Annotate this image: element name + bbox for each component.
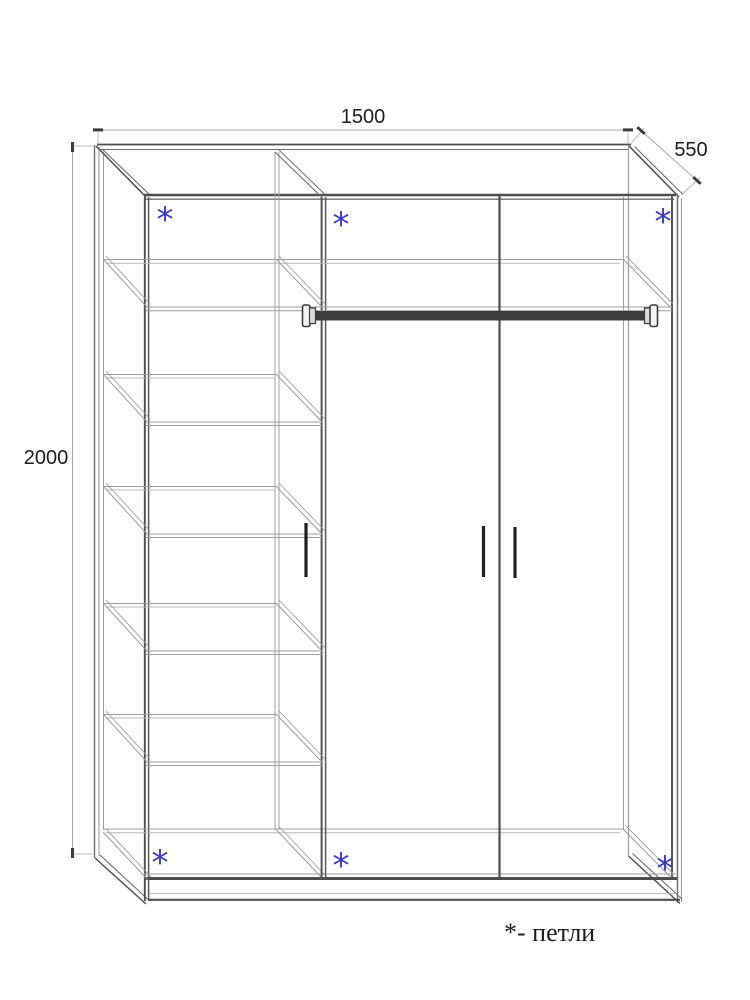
dimension-height: 2000: [24, 142, 92, 858]
rod-bracket-right: [650, 305, 658, 327]
hinge-asterisk: *: [333, 205, 350, 245]
depth-edge: [102, 149, 151, 196]
shelf-edge-diagonal: [276, 830, 322, 879]
depth-edge: [95, 858, 146, 904]
hinge-asterisk: *: [152, 843, 169, 883]
rod-bar: [314, 311, 646, 321]
shelves: [103, 256, 673, 766]
shelf-edge-diagonal: [103, 486, 147, 534]
dimension-tick: [623, 128, 633, 131]
depth-edge: [100, 855, 148, 900]
shelf-edge-diagonal: [276, 603, 322, 651]
shelf-edge-diagonal: [276, 259, 322, 307]
height-dimension-label: 2000: [24, 447, 69, 469]
dimension-tick: [636, 126, 645, 135]
hanging-rod: [303, 305, 658, 327]
shelf-edge-diagonal: [275, 152, 322, 198]
legend-label: *- петли: [504, 918, 595, 947]
shelf-edge-diagonal: [279, 483, 325, 531]
shelf-edge-diagonal: [103, 603, 147, 651]
dimension-tick: [71, 142, 74, 152]
dimension-tick: [93, 128, 103, 131]
shelf-edge-diagonal: [103, 259, 147, 307]
door-handles: [306, 523, 515, 578]
shelf-edge-diagonal: [623, 259, 670, 307]
rod-bracket-left: [303, 305, 311, 327]
rod-bracket-left: [310, 308, 316, 324]
technical-drawing-page: 1500 2000 550 ****** *- петли: [0, 0, 750, 1000]
dimension-tick: [71, 848, 74, 858]
wardrobe-carcass: [95, 145, 684, 905]
shelf-edge-diagonal: [103, 714, 147, 762]
shelf-edge-diagonal: [279, 371, 325, 419]
hinge-asterisk: *: [157, 200, 174, 240]
shelf-edge-diagonal: [626, 256, 673, 304]
hinge-markers: ******: [152, 200, 674, 889]
depth-edge: [629, 146, 679, 197]
width-dimension-label: 1500: [341, 106, 386, 128]
dimension-width: 1500: [93, 106, 633, 146]
depth-dimension-label: 550: [674, 139, 707, 161]
shelf-edge-diagonal: [276, 374, 322, 422]
hinge-asterisk: *: [333, 846, 350, 886]
shelf-edge-diagonal: [103, 832, 148, 880]
hinge-asterisk: *: [655, 202, 672, 242]
shelf-edge-diagonal: [279, 600, 325, 648]
hinge-asterisk: *: [657, 849, 674, 889]
wardrobe-drawing: 1500 2000 550 ****** *- петли: [0, 0, 750, 1000]
shelf-edge-diagonal: [279, 711, 325, 759]
shelf-edge-diagonal: [279, 827, 325, 876]
shelf-edge-diagonal: [278, 149, 325, 195]
shelf-edge-diagonal: [276, 714, 322, 762]
shelf-edge-diagonal: [276, 486, 322, 534]
shelf-edge-diagonal: [103, 374, 147, 422]
